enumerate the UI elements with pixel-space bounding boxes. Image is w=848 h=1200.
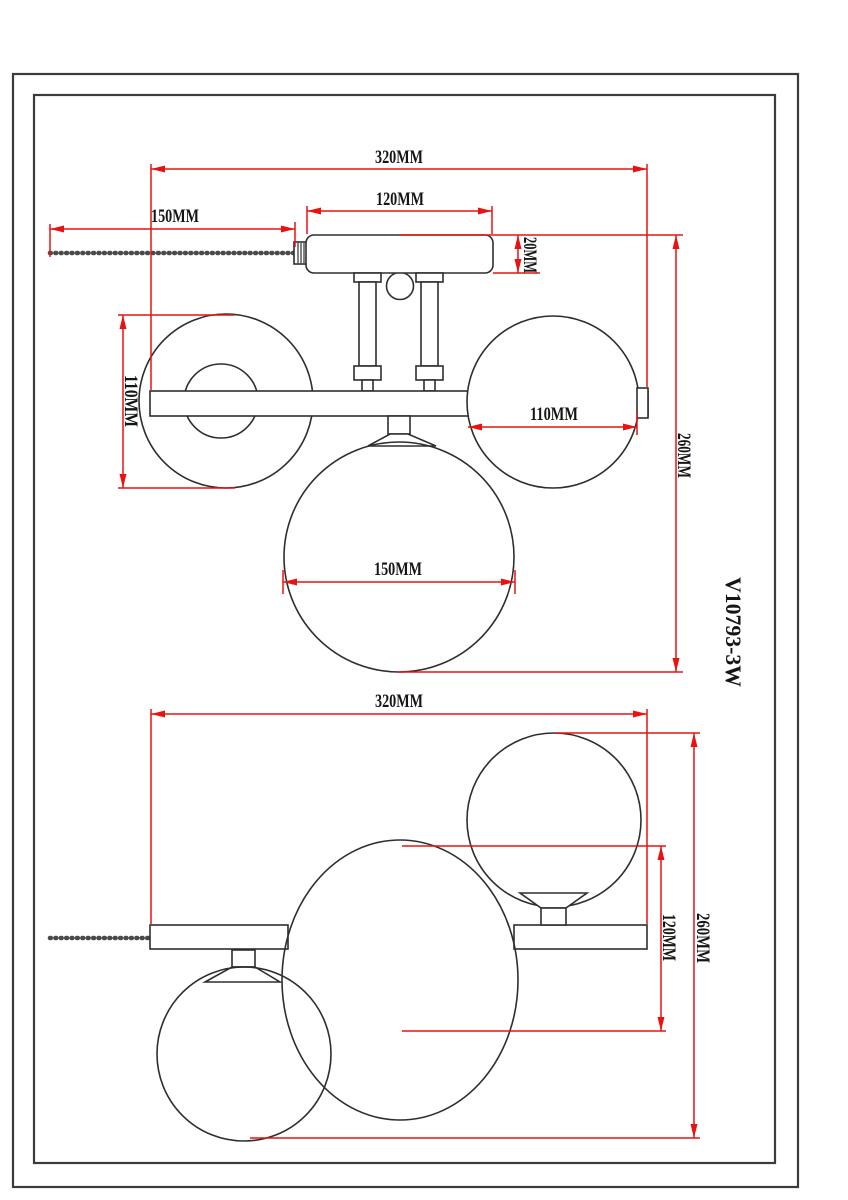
center-globe-neck	[388, 416, 410, 434]
dim-side-canopy-height: 20MM	[493, 235, 540, 273]
large-globe	[284, 442, 514, 672]
right-globe	[467, 316, 639, 488]
dim-side-canopy-width: 120MM	[307, 189, 492, 234]
model-code: V10793-3W	[721, 577, 746, 687]
mounting-bar-right	[514, 925, 647, 949]
dim-label: 120MM	[376, 189, 424, 210]
bottom-left-globe-collar	[205, 967, 280, 982]
post-cap	[354, 273, 381, 282]
dim-label: 260MM	[673, 433, 694, 478]
bottom-left-globe	[157, 967, 331, 1141]
post-flange	[354, 366, 381, 380]
dim-label: 260MM	[692, 913, 713, 963]
side-view: 320MM 120MM 150MM 20MM 110MM	[50, 147, 694, 672]
dim-label: 150MM	[151, 206, 199, 227]
dim-label: 110MM	[530, 404, 578, 425]
dim-label: 110MM	[120, 375, 141, 427]
drawing-sheet: 320MM 120MM 150MM 20MM 110MM	[0, 0, 848, 1200]
dim-side-chain-length: 150MM	[50, 206, 295, 257]
dim-label: 120MM	[658, 914, 679, 961]
mounting-bar-left	[150, 925, 288, 949]
bar-end-cap	[637, 388, 648, 418]
canopy	[306, 235, 493, 273]
technical-drawing: 320MM 120MM 150MM 20MM 110MM	[0, 0, 848, 1200]
bottom-left-globe-neck	[232, 950, 255, 967]
post-flange	[416, 366, 443, 380]
post-rod	[359, 282, 376, 366]
post-rod	[421, 282, 438, 366]
top-right-globe-collar	[520, 893, 587, 908]
dim-label: 320MM	[375, 691, 423, 712]
dim-label: 20MM	[519, 237, 540, 273]
dim-label: 150MM	[374, 559, 422, 580]
post-neck	[362, 380, 373, 391]
top-right-globe-neck	[541, 908, 566, 925]
post-cap	[416, 273, 443, 282]
right-post	[416, 273, 443, 391]
plan-view: 320MM 120MM 260MM	[50, 691, 713, 1141]
post-neck	[424, 380, 435, 391]
chain-connector	[294, 242, 307, 264]
canopy-knob	[387, 273, 414, 300]
dim-label: 320MM	[375, 147, 423, 168]
top-right-globe	[467, 733, 641, 907]
large-globe	[282, 840, 518, 1120]
left-post	[354, 273, 381, 391]
dim-side-large-globe: 150MM	[283, 559, 515, 594]
dim-plan-overall-width: 320MM	[151, 691, 647, 924]
